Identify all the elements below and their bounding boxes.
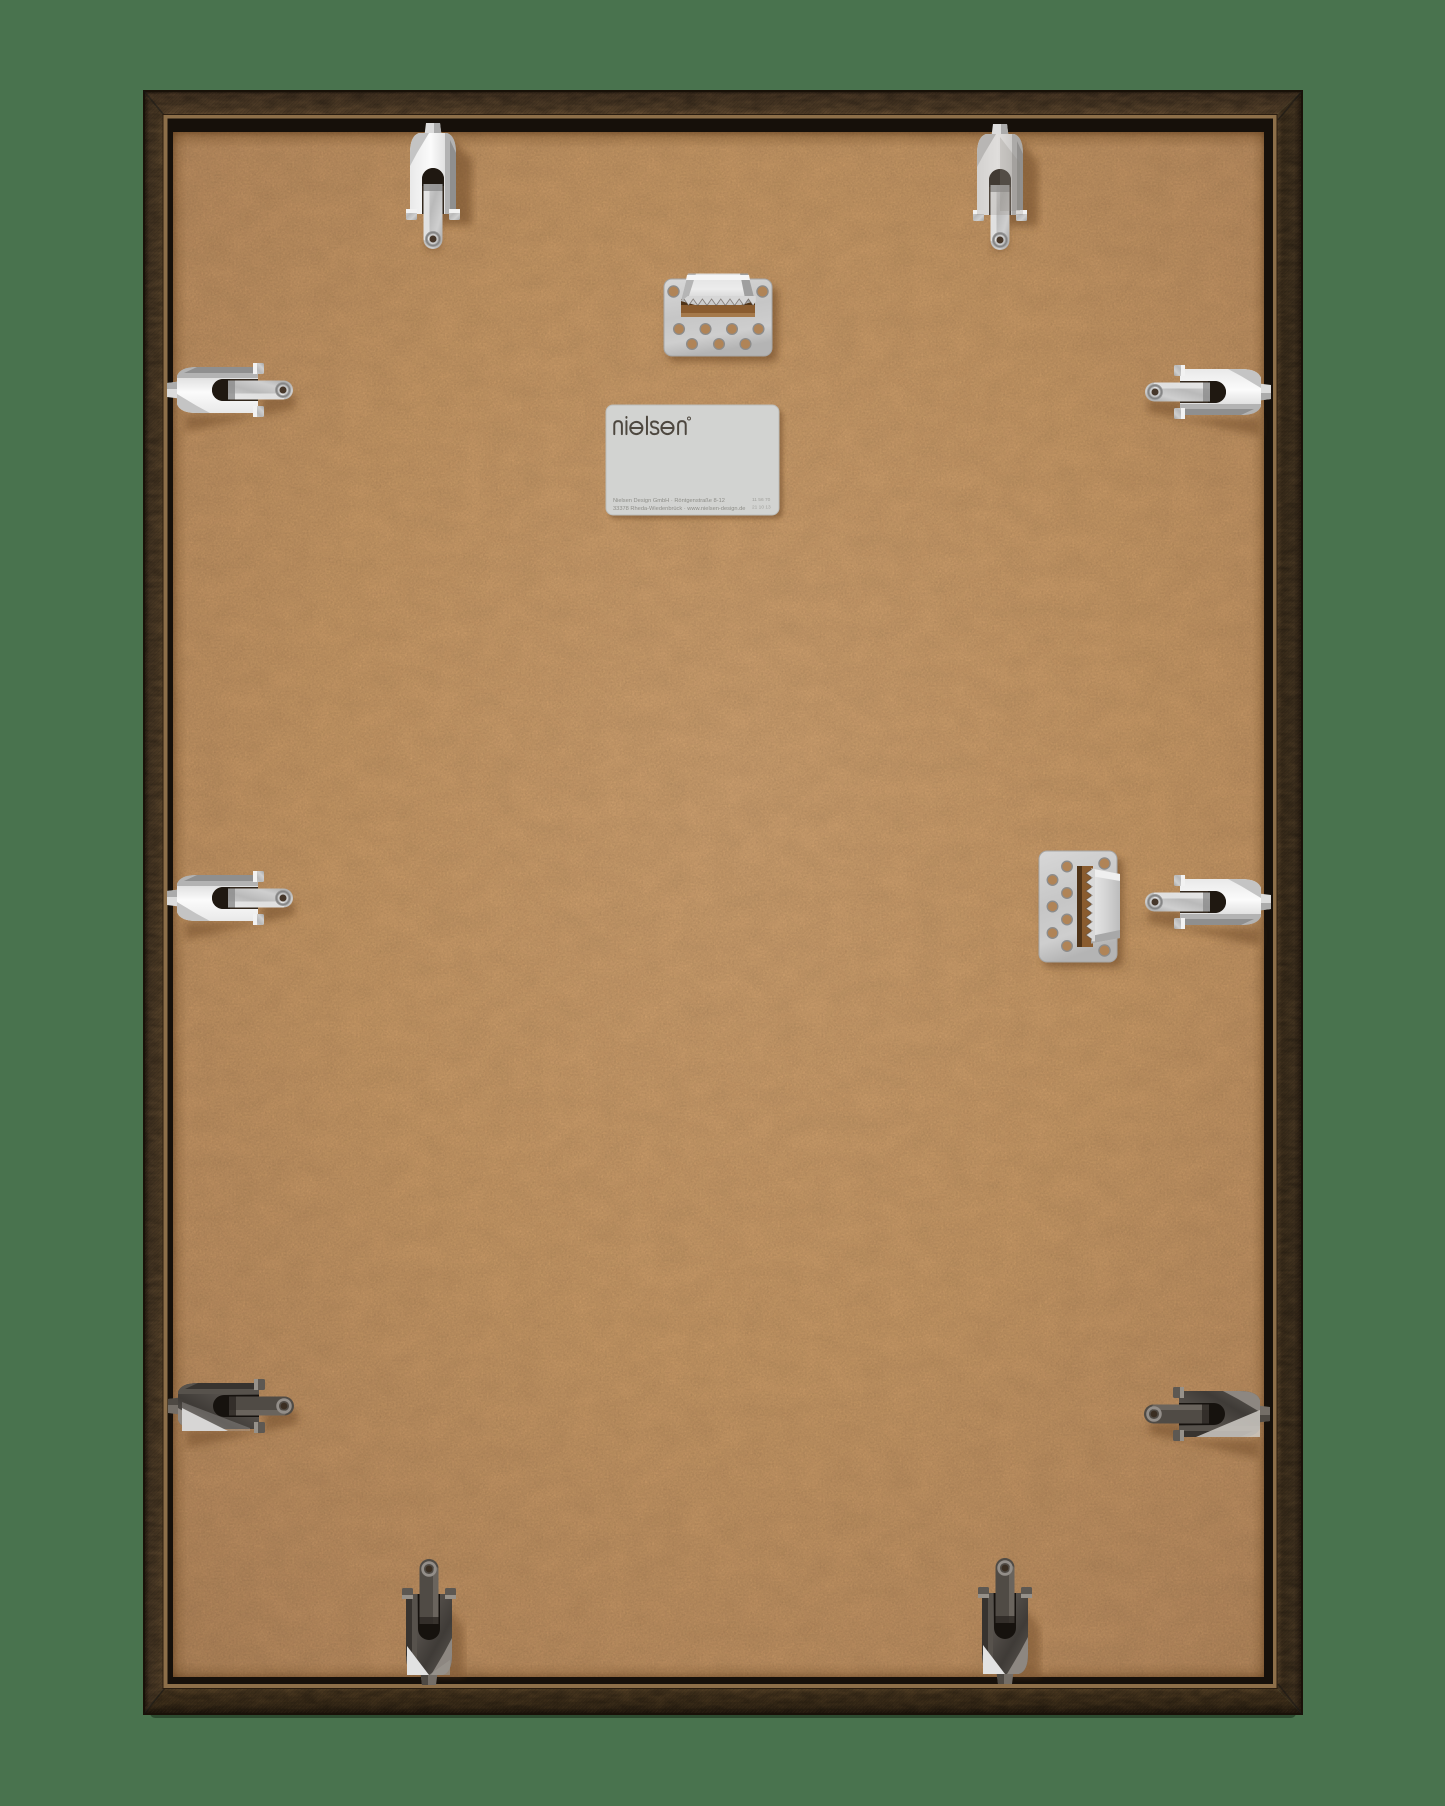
svg-text:Nielsen Design GmbH · Röntgens: Nielsen Design GmbH · Röntgenstraße 8-12 (613, 498, 725, 504)
svg-text:21 10 13: 21 10 13 (752, 505, 771, 511)
svg-text:11 56 70: 11 56 70 (752, 497, 771, 503)
svg-text:33378 Rheda-Wiedenbrück · www.: 33378 Rheda-Wiedenbrück · www.nielsen-de… (613, 506, 745, 512)
